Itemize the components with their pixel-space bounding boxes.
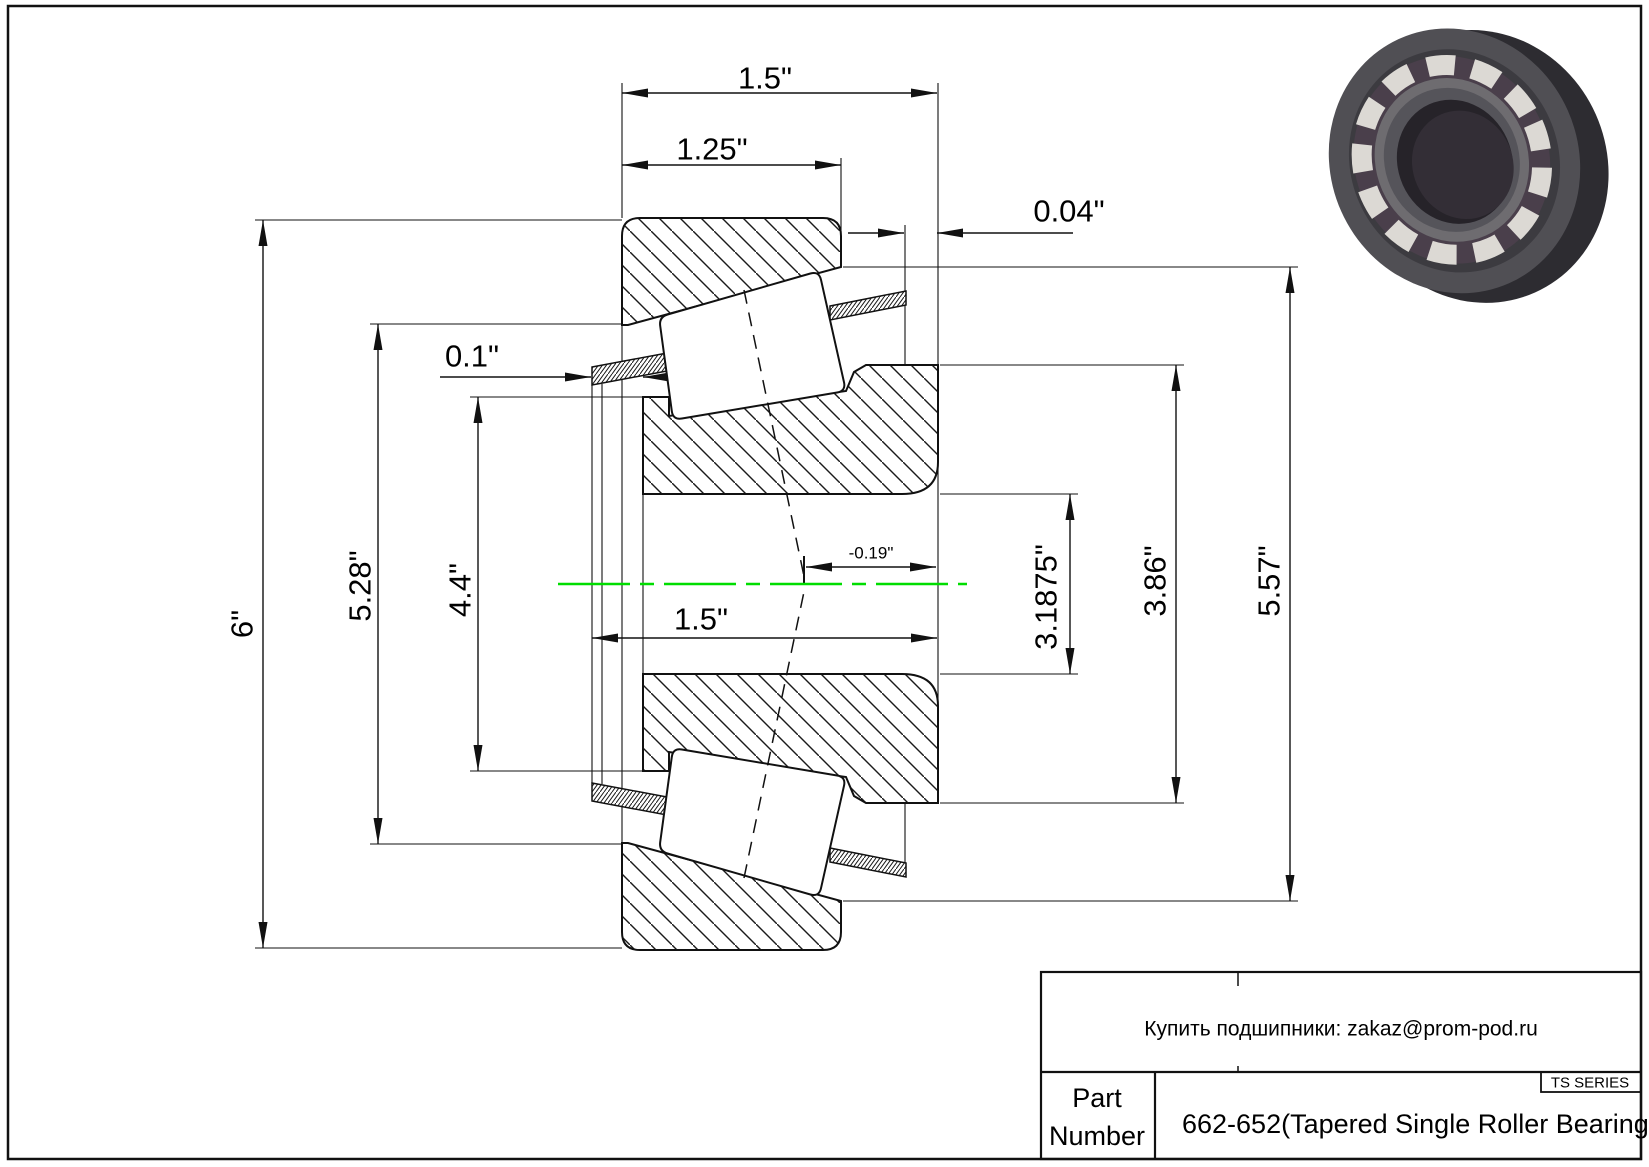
- dim-standout-back: 0.04": [1033, 194, 1104, 229]
- dim-overall-width: 1.5": [738, 61, 792, 96]
- drawing-canvas: 1.5" 1.25" 0.04" 0.1" 1.5" -0.19" 6" 5.2…: [0, 0, 1649, 1167]
- dim-outer-diameter: 6": [225, 610, 260, 638]
- part-label-1: Part: [1072, 1083, 1122, 1113]
- part-label-2: Number: [1049, 1121, 1145, 1151]
- title-block-text: Купить подшипники: zakaz@prom-pod.ru TS …: [1049, 1018, 1649, 1152]
- dim-standout-front: 0.1": [445, 339, 499, 374]
- dim-cage-front-diameter: 4.4": [443, 563, 478, 617]
- drawing-page: 1.5" 1.25" 0.04" 0.1" 1.5" -0.19" 6" 5.2…: [0, 0, 1649, 1167]
- bearing-photo: [1287, 0, 1649, 351]
- contact-text: Купить подшипники: zakaz@prom-pod.ru: [1144, 1018, 1538, 1041]
- dim-cup-front-diameter: 5.28": [343, 550, 378, 621]
- part-number-value: 662-652(Tapered Single Roller Bearings): [1182, 1109, 1649, 1139]
- dim-cone-width: 1.5": [674, 602, 728, 637]
- dim-rib-diameter: 3.86": [1138, 545, 1173, 616]
- dim-effective-center: -0.19": [849, 544, 894, 563]
- dim-cup-outer-diameter: 5.57": [1252, 545, 1287, 616]
- dim-bore-diameter: 3.1875": [1029, 544, 1064, 650]
- series-label: TS SERIES: [1551, 1075, 1629, 1092]
- dim-cup-width: 1.25": [676, 132, 747, 167]
